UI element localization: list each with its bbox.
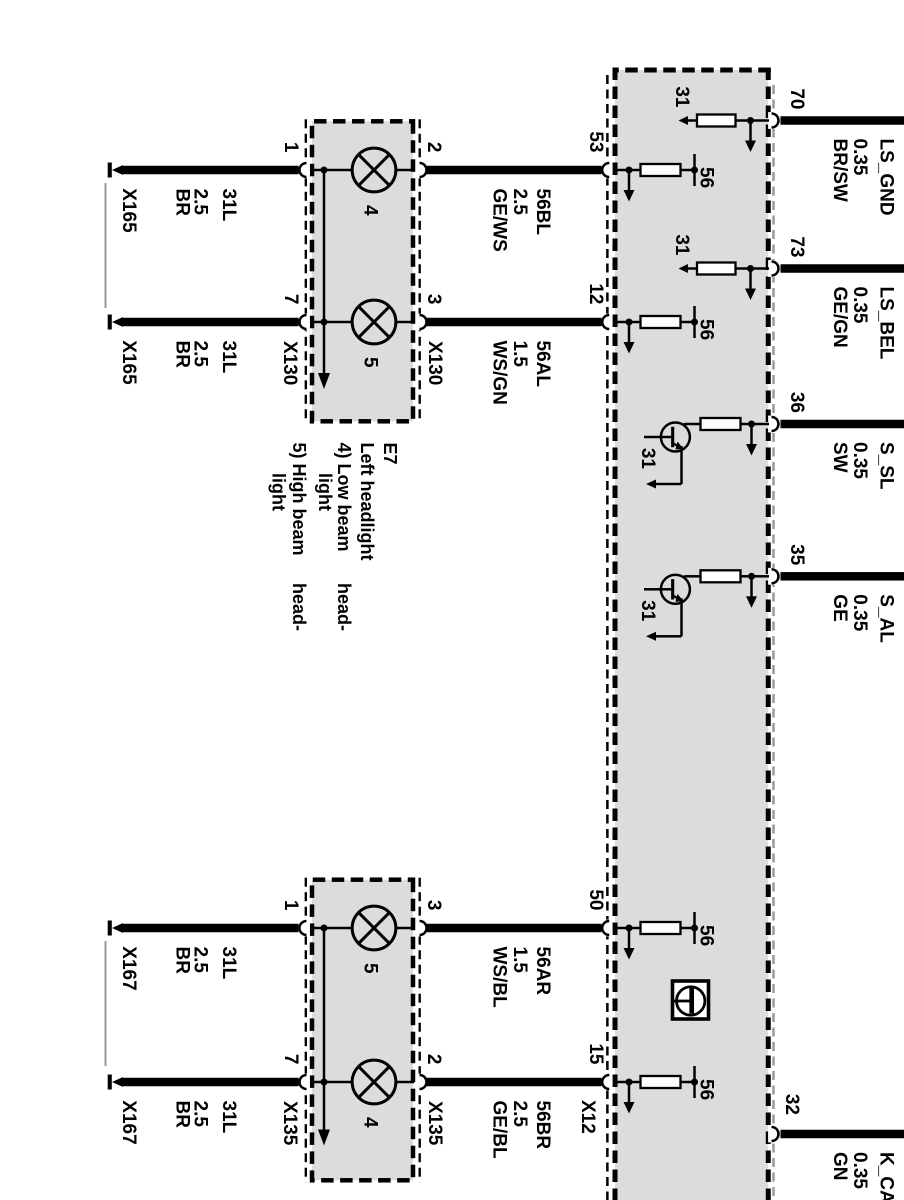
svg-text:2: 2 — [423, 1054, 444, 1065]
svg-text:31L: 31L — [218, 189, 239, 222]
svg-text:light: light — [315, 473, 335, 511]
svg-text:15: 15 — [585, 1043, 606, 1065]
svg-text:35: 35 — [786, 544, 807, 566]
svg-text:X135: X135 — [279, 1101, 300, 1146]
svg-text:1.5: 1.5 — [509, 341, 530, 368]
svg-text:56: 56 — [696, 1079, 717, 1100]
svg-text:4) Low beam: 4) Low beam — [334, 443, 354, 552]
svg-text:56BL: 56BL — [532, 189, 553, 236]
svg-text:2: 2 — [423, 142, 444, 153]
svg-text:56: 56 — [696, 925, 717, 946]
svg-text:0.35: 0.35 — [849, 1152, 870, 1189]
svg-text:5) High beam: 5) High beam — [289, 443, 309, 556]
svg-text:7: 7 — [280, 1054, 301, 1065]
svg-text:31: 31 — [637, 448, 658, 470]
svg-text:light: light — [269, 473, 289, 511]
svg-text:70: 70 — [786, 88, 807, 109]
svg-text:2.5: 2.5 — [509, 1101, 530, 1128]
svg-text:2.5: 2.5 — [190, 189, 211, 216]
svg-text:56: 56 — [696, 319, 717, 340]
svg-text:1.5: 1.5 — [509, 947, 530, 974]
svg-text:2.5: 2.5 — [509, 189, 530, 216]
svg-text:X130: X130 — [279, 341, 300, 385]
svg-text:4: 4 — [360, 1117, 381, 1128]
svg-text:31L: 31L — [218, 341, 239, 374]
svg-text:2.5: 2.5 — [190, 947, 211, 974]
svg-text:3: 3 — [423, 294, 444, 305]
svg-text:X167: X167 — [118, 1100, 139, 1144]
svg-text:X165: X165 — [118, 340, 139, 385]
svg-text:4: 4 — [360, 205, 381, 216]
svg-text:BR: BR — [172, 1101, 193, 1129]
svg-text:BR: BR — [172, 341, 193, 369]
svg-text:36: 36 — [786, 392, 807, 413]
svg-text:GE/GN: GE/GN — [829, 287, 850, 348]
svg-text:BR/SW: BR/SW — [829, 139, 850, 202]
svg-text:S_AL: S_AL — [876, 594, 897, 643]
svg-text:GN: GN — [829, 1152, 850, 1181]
svg-text:GE/BL: GE/BL — [489, 1101, 510, 1159]
svg-text:BR: BR — [172, 189, 193, 217]
svg-text:31L: 31L — [218, 1101, 239, 1134]
svg-text:7: 7 — [280, 294, 301, 305]
svg-text:2.5: 2.5 — [190, 341, 211, 368]
svg-text:X135: X135 — [424, 1101, 445, 1146]
svg-text:WS/GN: WS/GN — [489, 341, 510, 405]
svg-text:BR: BR — [172, 947, 193, 975]
svg-text:5: 5 — [360, 963, 381, 974]
svg-text:head-: head- — [289, 583, 309, 631]
svg-text:0.35: 0.35 — [849, 594, 870, 631]
svg-text:31: 31 — [671, 234, 692, 256]
svg-text:3: 3 — [423, 900, 444, 911]
svg-text:5: 5 — [360, 357, 381, 368]
svg-text:31L: 31L — [218, 947, 239, 980]
svg-text:S_SL: S_SL — [876, 442, 897, 490]
svg-text:GE/WS: GE/WS — [489, 189, 510, 252]
svg-text:56BR: 56BR — [532, 1101, 553, 1150]
svg-text:31: 31 — [637, 600, 658, 622]
svg-text:0.35: 0.35 — [849, 287, 870, 324]
svg-text:X12: X12 — [577, 1100, 598, 1134]
svg-text:X130: X130 — [424, 341, 445, 385]
svg-text:73: 73 — [786, 236, 807, 257]
svg-text:2.5: 2.5 — [190, 1101, 211, 1128]
svg-text:K_CAN: K_CAN — [876, 1152, 897, 1200]
svg-text:56AR: 56AR — [532, 947, 553, 996]
svg-text:LS_BEL: LS_BEL — [876, 287, 897, 360]
svg-text:WS/BL: WS/BL — [489, 947, 510, 1009]
svg-text:Left headlight: Left headlight — [357, 443, 377, 561]
svg-text:X165: X165 — [118, 188, 139, 233]
svg-text:0.35: 0.35 — [849, 139, 870, 176]
svg-text:SW: SW — [829, 442, 850, 473]
svg-text:56AL: 56AL — [532, 341, 553, 388]
svg-text:0.35: 0.35 — [849, 442, 870, 479]
svg-text:X167: X167 — [118, 946, 139, 990]
svg-text:56: 56 — [696, 167, 717, 188]
svg-text:LS_GND: LS_GND — [876, 139, 897, 216]
svg-text:E7: E7 — [380, 443, 400, 465]
svg-text:head-: head- — [334, 583, 354, 631]
svg-text:12: 12 — [585, 283, 606, 304]
svg-text:1: 1 — [280, 142, 301, 153]
svg-text:1: 1 — [280, 900, 301, 911]
svg-text:50: 50 — [585, 889, 606, 910]
svg-text:53: 53 — [585, 131, 606, 152]
svg-text:GE: GE — [829, 594, 850, 621]
svg-text:31: 31 — [671, 86, 692, 108]
svg-text:32: 32 — [781, 1094, 802, 1115]
